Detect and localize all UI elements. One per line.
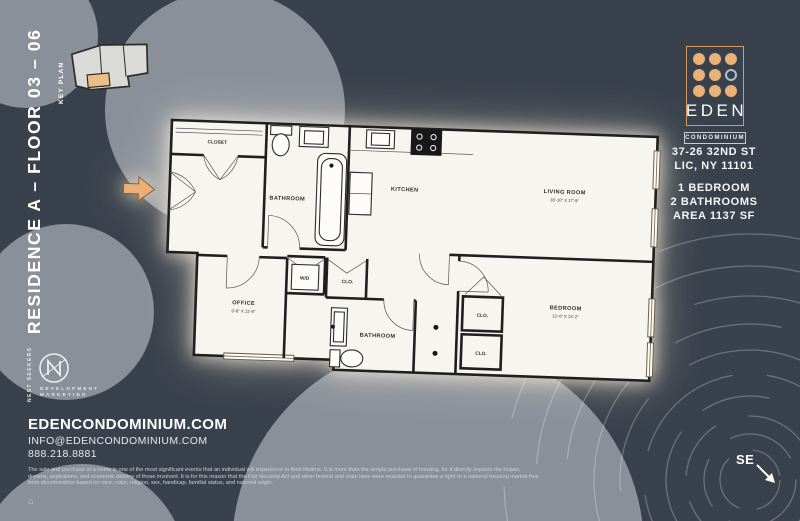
room-label-office: OFFICE	[232, 300, 255, 307]
room-label-clo-bed1: CLO.	[477, 313, 489, 319]
room-label-kitchen: KITCHEN	[391, 187, 419, 194]
address-line2: LIC, NY 11101	[650, 160, 778, 172]
equal-housing-icon: ⌂	[28, 496, 33, 506]
key-plan-unit-highlight	[87, 73, 110, 87]
room-label-clo-bed2: CLO.	[475, 351, 487, 357]
unit-area: AREA 1137 SF	[650, 210, 778, 222]
fair-housing-disclaimer: The sale and purchase of a home is one o…	[28, 467, 540, 487]
room-dims-living: 16'-10" X 17'-9"	[550, 197, 579, 203]
entry-arrow-icon	[123, 176, 155, 201]
phone-number: 888.218.8881	[28, 448, 97, 460]
nest-seekers-logo-icon	[38, 352, 70, 384]
floor-plan: CLOSET BATHROOM KITCHEN LIVING ROOM 16'-…	[120, 110, 676, 406]
room-label-closet: CLOSET	[207, 139, 227, 146]
room-label-bedroom: BEDROOM	[550, 305, 582, 312]
room-dims-office: 9'-8" X 11'-9"	[231, 308, 255, 314]
compass-direction: SE	[736, 452, 754, 467]
nest-seekers-label: NEST SEEKERS	[27, 352, 33, 402]
room-label-clo-hall: CLO.	[342, 279, 354, 285]
room-label-bathroom1: BATHROOM	[269, 195, 305, 202]
room-label-wd: W/D	[300, 276, 310, 282]
compass-arrow-icon	[754, 462, 780, 488]
eden-logo-wordmark: EDEN	[686, 101, 747, 121]
address-line1: 37-26 32ND ST	[650, 146, 778, 158]
page-title: RESIDENCE A – FLOOR 03 – 06	[24, 42, 45, 334]
room-dims-bedroom: 13'-0" X 13'-2"	[552, 313, 579, 319]
unit-bedrooms: 1 BEDROOM	[650, 182, 778, 194]
unit-bathrooms: 2 BATHROOMS	[650, 196, 778, 208]
email-link[interactable]: INFO@EDENCONDOMINIUM.COM	[28, 435, 208, 447]
eden-logo: EDEN	[686, 46, 744, 126]
eden-logo-dots-icon	[693, 53, 737, 97]
room-label-bathroom2: BATHROOM	[360, 333, 396, 340]
key-plan-label: KEY PLAN	[58, 44, 65, 104]
key-plan-diagram	[68, 34, 152, 100]
condominium-tag: CONDOMINIUM	[684, 132, 746, 144]
development-marketing-label: DEVELOPMENT MARKETING	[40, 386, 99, 398]
website-link[interactable]: EDENCONDOMINIUM.COM	[28, 416, 227, 433]
